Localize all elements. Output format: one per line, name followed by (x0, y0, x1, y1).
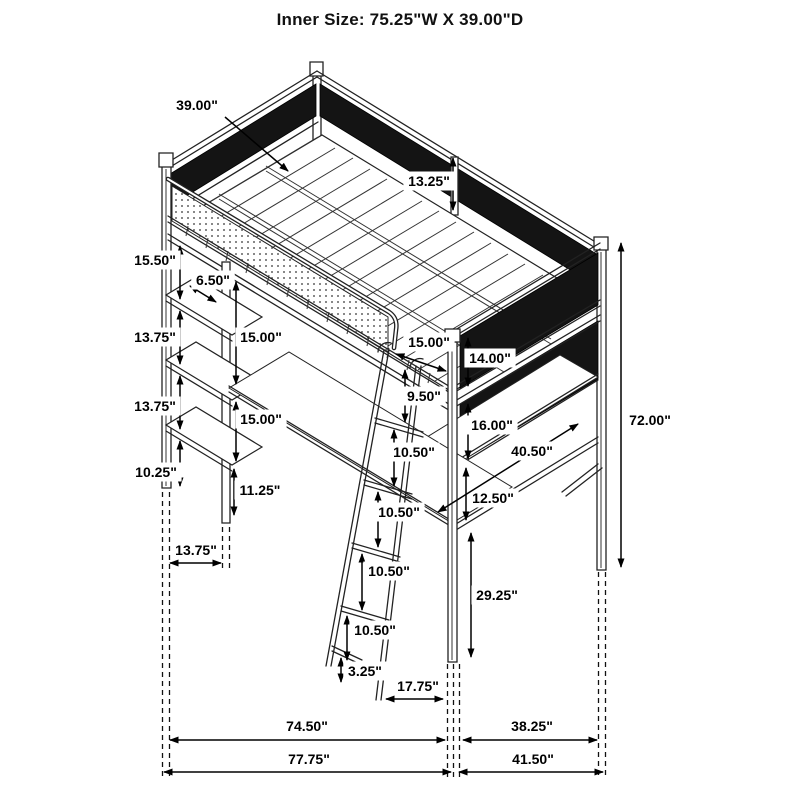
dimension-label-ladder-offset: 17.75" (397, 678, 439, 694)
dimension-overall-width: 77.75" (164, 750, 451, 773)
dimension-label-desk-to-shelf3: 15.00" (240, 411, 282, 427)
dimension-label-rung-gap-2: 10.50" (378, 504, 420, 520)
dimension-base-span-right: 38.25" (463, 717, 597, 741)
dimension-label-inner-depth: 39.00" (176, 97, 218, 113)
dimension-overall-depth: 41.50" (459, 750, 603, 773)
dimension-label-shelf-diagonal: 40.50" (511, 443, 553, 459)
dimension-label-guardrail-height: 13.25" (408, 173, 450, 189)
dimension-label-base-span-left: 74.50" (286, 718, 328, 734)
dimension-label-ladder-foot: 3.25" (348, 663, 382, 679)
dimension-label-tower-width: 13.75" (175, 542, 217, 558)
dimension-label-rail-to-desk: 15.00" (240, 329, 282, 345)
dimension-label-total-height: 72.00" (629, 412, 671, 428)
dimension-label-base-span-right: 38.25" (511, 718, 553, 734)
diagram-page: Inner Size: 75.25"W X 39.00"D (0, 0, 800, 800)
dimension-label-rail-to-post: 15.00" (408, 334, 450, 350)
dimension-label-lower-mesh-height: 16.00" (471, 417, 513, 433)
dimension-label-shelf2-to-shelf3: 13.75" (134, 398, 176, 414)
dimension-base-span-left: 74.50" (170, 717, 445, 741)
dimension-label-rung-gap-4: 10.50" (354, 622, 396, 638)
dimension-shelf3-to-bottom: 10.25" (130, 441, 181, 486)
loft-bed-diagram: 39.00"13.25"15.50"6.50"13.75"15.00"13.75… (0, 0, 800, 800)
dimension-label-bed-to-shelf1: 15.50" (134, 252, 176, 268)
dimension-label-mesh-to-rail: 12.50" (472, 490, 514, 506)
dimension-label-overall-width: 77.75" (288, 751, 330, 767)
dimension-ladder-foot: 3.25" (341, 658, 387, 682)
dimension-label-ladder-top-gap: 9.50" (407, 388, 441, 404)
left-post (159, 153, 173, 488)
dimension-label-desk-leg: 11.25" (240, 482, 281, 498)
dimension-label-shelf1-to-shelf2: 13.75" (134, 329, 176, 345)
shelf-brace (562, 464, 598, 492)
dimension-total-height: 72.00" (621, 243, 676, 567)
dimension-label-rung-gap-3: 10.50" (368, 563, 410, 579)
dimension-rung-gap-4: 10.50" (347, 616, 401, 660)
dimension-label-shelf-offset: 6.50" (196, 272, 230, 288)
dimension-label-overall-depth: 41.50" (512, 751, 554, 767)
dimension-label-upper-mesh-height: 14.00" (469, 350, 511, 366)
dimension-label-leg-height: 29.25" (476, 587, 518, 603)
dimension-label-shelf3-to-bottom: 10.25" (135, 464, 177, 480)
dimension-label-rung-gap-1: 10.50" (393, 444, 435, 460)
dimension-leg-height: 29.25" (471, 533, 523, 657)
dimension-tower-width: 13.75" (170, 541, 222, 564)
dimension-desk-leg: 11.25" (234, 469, 286, 515)
dimension-ladder-offset: 17.75" (386, 677, 444, 700)
